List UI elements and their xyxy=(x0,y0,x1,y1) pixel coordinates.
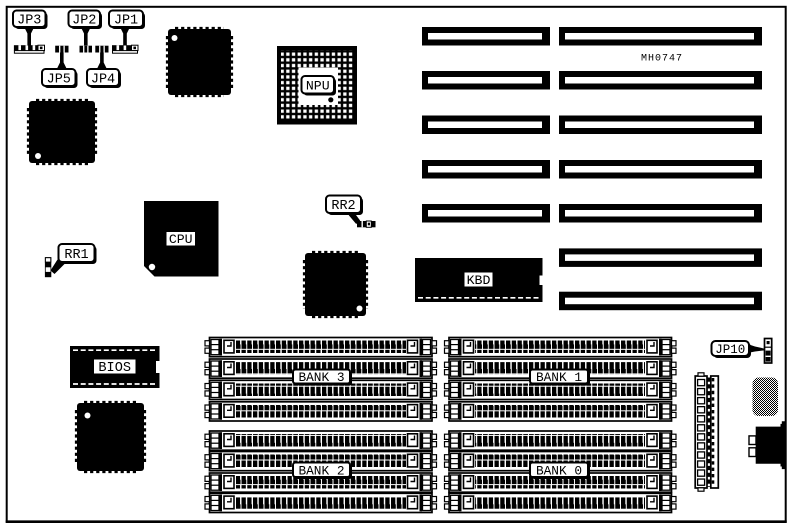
svg-text:BANK 0: BANK 0 xyxy=(536,463,582,478)
svg-text:NPU: NPU xyxy=(306,79,330,94)
svg-text:BIOS: BIOS xyxy=(98,361,131,376)
svg-text:CPU: CPU xyxy=(169,232,193,247)
svg-text:MH0747: MH0747 xyxy=(641,54,683,65)
svg-text:JP5: JP5 xyxy=(47,72,71,87)
svg-text:RR1: RR1 xyxy=(64,248,88,263)
svg-text:JP1: JP1 xyxy=(114,14,138,29)
svg-text:RR2: RR2 xyxy=(331,199,355,214)
svg-text:JP10: JP10 xyxy=(715,343,745,357)
svg-text:JP4: JP4 xyxy=(91,72,115,87)
svg-text:JP2: JP2 xyxy=(72,14,96,29)
svg-text:JP3: JP3 xyxy=(17,14,41,29)
svg-text:BANK 1: BANK 1 xyxy=(536,370,582,385)
svg-text:BANK 3: BANK 3 xyxy=(298,370,344,385)
svg-text:KBD: KBD xyxy=(467,273,491,288)
svg-text:BANK 2: BANK 2 xyxy=(298,463,344,478)
